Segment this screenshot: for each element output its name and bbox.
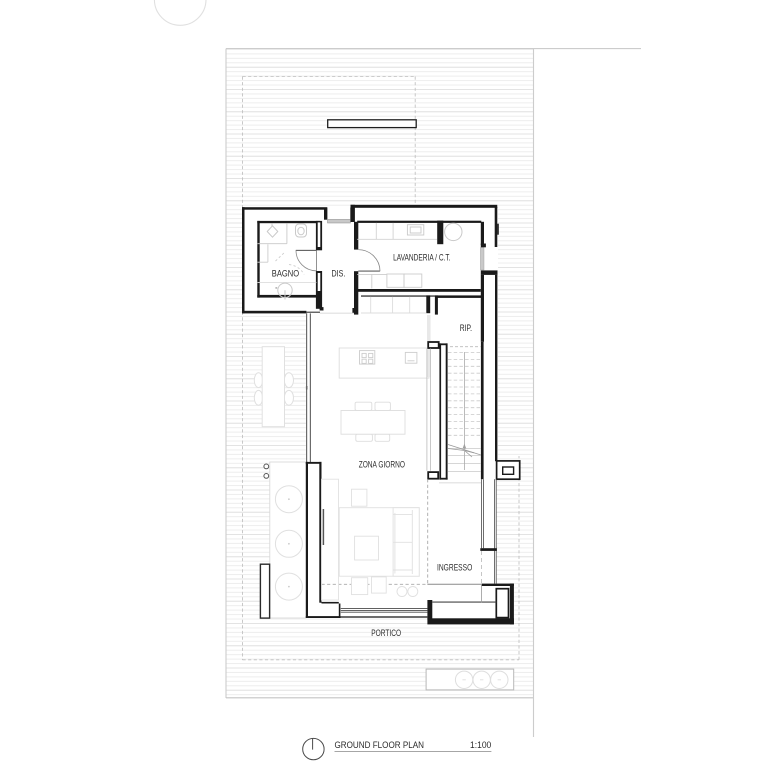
svg-text:INGRESSO: INGRESSO xyxy=(437,562,472,572)
svg-text:PORTICO: PORTICO xyxy=(371,628,401,638)
svg-text:DIS.: DIS. xyxy=(332,268,346,278)
svg-text:ZONA GIORNO: ZONA GIORNO xyxy=(359,460,405,470)
svg-text:RIP.: RIP. xyxy=(460,323,472,333)
svg-text:LAVANDERIA / C.T.: LAVANDERIA / C.T. xyxy=(393,252,450,262)
svg-text:1:100: 1:100 xyxy=(470,740,491,750)
svg-text:BAGNO: BAGNO xyxy=(272,268,299,278)
svg-text:GROUND FLOOR PLAN: GROUND FLOOR PLAN xyxy=(335,740,425,750)
